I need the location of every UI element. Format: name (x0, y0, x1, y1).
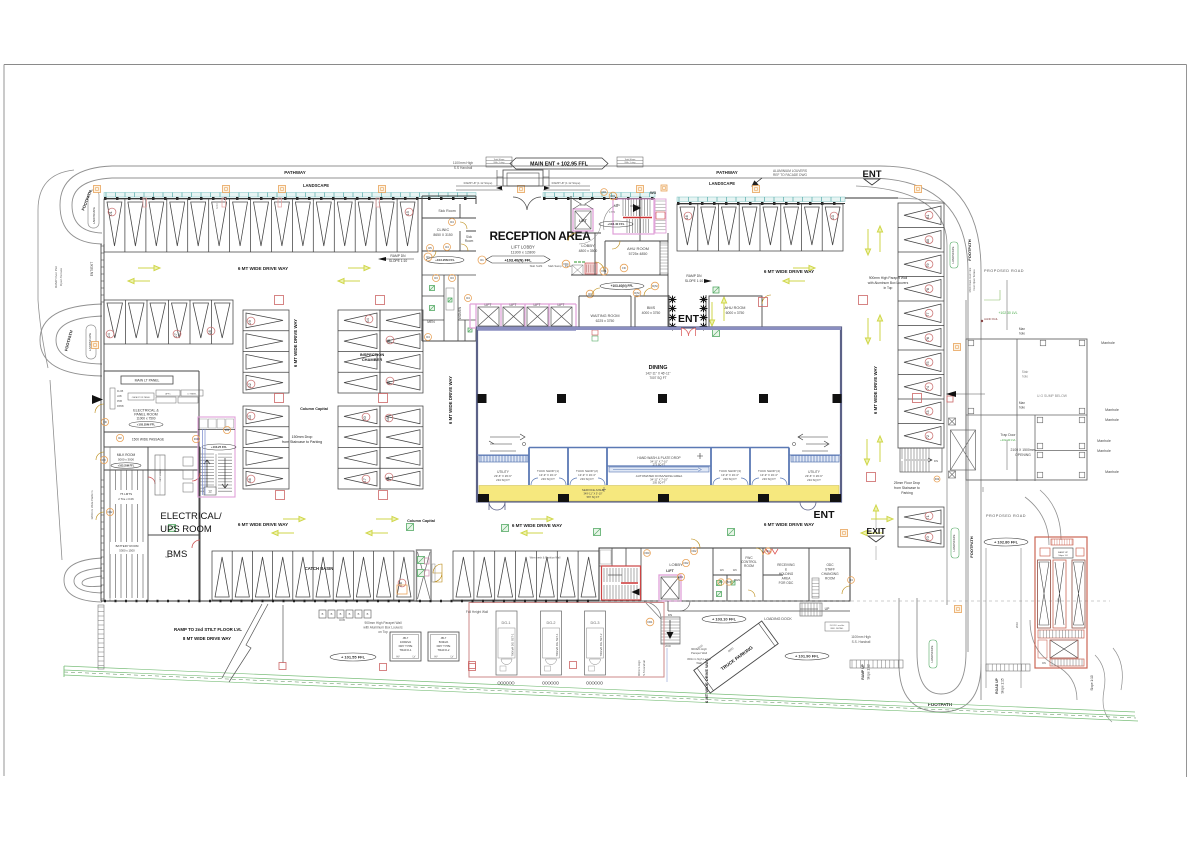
svg-text:6 MT WIDE DRIVE WAY: 6 MT WIDE DRIVE WAY (448, 376, 453, 424)
svg-text:APFC: APFC (165, 393, 171, 396)
svg-text:349'-11" X 5'-10": 349'-11" X 5'-10" (583, 492, 602, 496)
svg-text:2 Tire x 0.06: 2 Tire x 0.06 (118, 497, 134, 501)
svg-text:78: 78 (925, 288, 930, 292)
svg-text:With 1 step: With 1 step (494, 161, 506, 164)
svg-text:790kVA DG SET-1: 790kVA DG SET-1 (511, 633, 515, 656)
svg-text:RAMP DN: RAMP DN (686, 274, 702, 278)
svg-text:RAMP UP: RAMP UP (861, 663, 865, 679)
svg-text:FD: FD (622, 266, 626, 270)
svg-text:12: 12 (208, 490, 212, 494)
svg-text:Manhole: Manhole (1105, 408, 1119, 412)
svg-text:27: 27 (173, 333, 178, 337)
svg-text:900mm High Parapet Wall: 900mm High Parapet Wall (364, 621, 401, 625)
svg-text:HOLDING: HOLDING (779, 572, 794, 576)
svg-text:UP: UP (825, 607, 830, 611)
svg-text:Man: Man (1019, 327, 1025, 331)
svg-text:6000 x 3750: 6000 x 3750 (726, 311, 745, 315)
svg-text:142'-11" X 46'-11": 142'-11" X 46'-11" (646, 372, 671, 376)
svg-text:4000 x 3750: 4000 x 3750 (642, 311, 661, 315)
svg-text:46: 46 (398, 582, 403, 586)
svg-text:6 MT WIDE DRIVE WAY: 6 MT WIDE DRIVE WAY (238, 522, 288, 527)
svg-text:DG-3: DG-3 (590, 621, 599, 625)
svg-text:LIFT LOBBY: LIFT LOBBY (511, 245, 535, 250)
svg-text:ENT: ENT (863, 169, 882, 180)
svg-text:23: 23 (830, 215, 835, 219)
svg-text:D4: D4 (849, 578, 853, 582)
svg-text:FLOB: FLOB (117, 390, 124, 393)
svg-text:16: 16 (684, 215, 689, 219)
svg-text:Column Capital: Column Capital (300, 407, 328, 411)
svg-text:Open Terrace: Open Terrace (59, 268, 63, 286)
svg-text:LANDSCAPE: LANDSCAPE (303, 183, 329, 188)
svg-text:F02: F02 (935, 477, 940, 481)
svg-text:79: 79 (925, 263, 930, 267)
svg-text:ROAD UP: ROAD UP (995, 677, 999, 693)
svg-text:Manhole: Manhole (1105, 470, 1119, 474)
svg-text:FD1: FD1 (611, 194, 616, 198)
svg-text:LANDSCAPE: LANDSCAPE (951, 246, 955, 263)
svg-text:FD1: FD1 (602, 269, 607, 273)
svg-text:+103.25 FFL: +103.25 FFL (211, 445, 227, 449)
svg-text:5725x 4850: 5725x 4850 (629, 252, 648, 256)
svg-text:from Staircase to: from Staircase to (894, 486, 920, 490)
svg-text:LT PANEL: LT PANEL (187, 393, 197, 396)
svg-text:6 MT WIDE DRIVE WAY: 6 MT WIDE DRIVE WAY (512, 523, 562, 528)
svg-text:F01: F01 (225, 428, 230, 432)
svg-text:+ 103.10 FFL: + 103.10 FFL (712, 616, 737, 621)
svg-text:ROOM: ROOM (744, 564, 754, 568)
svg-text:V3: V3 (719, 580, 723, 584)
svg-text:7007 SQ FT: 7007 SQ FT (649, 376, 666, 380)
svg-text:CHAMBER: CHAMBER (362, 357, 383, 362)
svg-text:AUTOMATED DOSA/WASH AREA: AUTOMATED DOSA/WASH AREA (636, 474, 682, 478)
svg-text:CHANGING: CHANGING (821, 572, 839, 576)
svg-text:1773: 1773 (609, 210, 615, 214)
svg-text:B: B (340, 612, 342, 616)
svg-text:RAMP UP: RAMP UP (1058, 551, 1068, 554)
svg-text:Total Slope: Total Slope (625, 158, 637, 161)
svg-text:900mm High: 900mm High (637, 660, 641, 676)
svg-text:6 MT WIDE DRIVE WAY: 6 MT WIDE DRIVE WAY (238, 266, 288, 271)
svg-text:790kVA DG SET-1: 790kVA DG SET-1 (555, 633, 559, 656)
svg-text:UPS ROOM: UPS ROOM (160, 524, 212, 535)
svg-text:Sol: Sol (165, 555, 169, 559)
svg-text:W3: W3 (650, 190, 657, 195)
svg-text:Sick Room: Sick Room (438, 209, 455, 213)
svg-text:Wire mesh & Partition Wall: Wire mesh & Partition Wall (530, 556, 561, 560)
svg-text:Parapet Wall: Parapet Wall (691, 651, 707, 655)
svg-text:1100mm High: 1100mm High (453, 161, 473, 165)
svg-text:in Top: in Top (884, 286, 893, 290)
svg-text:D1: D1 (480, 258, 484, 262)
svg-text:FD: FD (103, 420, 107, 424)
svg-text:DOB: DOB (339, 618, 345, 622)
svg-text:FD3: FD3 (645, 551, 650, 555)
svg-text:U.G SUMP BELOW: U.G SUMP BELOW (1037, 394, 1068, 398)
svg-text:+103.40 FFL: +103.40 FFL (607, 222, 624, 226)
svg-text:B: B (331, 612, 333, 616)
svg-text:SERVICE AISLE: SERVICE AISLE (582, 488, 604, 492)
svg-text:ENT: ENT (678, 313, 700, 325)
svg-text:LANDSCAPE: LANDSCAPE (930, 645, 934, 662)
svg-text:FD1: FD1 (602, 190, 607, 194)
svg-text:EXIT: EXIT (867, 526, 887, 536)
svg-text:BATTERY ROOM: BATTERY ROOM (116, 544, 139, 548)
svg-text:OA: OA (766, 549, 770, 553)
svg-text:Floor Open Terrace: Floor Open Terrace (973, 269, 976, 291)
svg-text:205 SQ FT: 205 SQ FT (653, 481, 666, 485)
svg-text:73: 73 (925, 410, 930, 414)
svg-text:29: 29 (247, 320, 252, 324)
svg-text:Parking: Parking (901, 491, 913, 495)
svg-text:LIFT: LIFT (558, 303, 565, 307)
svg-text:233 SQ FT: 233 SQ FT (541, 477, 555, 481)
svg-text:32: 32 (247, 383, 252, 387)
svg-text:FOOTPATH: FOOTPATH (928, 702, 952, 707)
svg-text:LDB: LDB (117, 395, 122, 398)
svg-text:DG-1: DG-1 (501, 621, 510, 625)
svg-text:2100 X 1500mm: 2100 X 1500mm (1011, 448, 1036, 452)
svg-text:61: 61 (385, 476, 390, 480)
svg-text:Wall: Wall (696, 661, 702, 665)
svg-text:FD: FD (102, 458, 106, 462)
svg-text:DN: DN (1042, 662, 1046, 665)
svg-text:+ 101.90 FFL: + 101.90 FFL (795, 653, 820, 658)
svg-text:Slab Soffit: Slab Soffit (530, 264, 543, 268)
svg-text:ELECTRICAL/: ELECTRICAL/ (160, 511, 222, 522)
svg-text:FD4: FD4 (564, 262, 569, 266)
svg-text:RPDB: RPDB (117, 405, 124, 408)
svg-text:LIFT: LIFT (485, 303, 492, 307)
svg-text:AREA: AREA (782, 577, 792, 581)
svg-text:RAMP UP (1:12 Slope): RAMP UP (1:12 Slope) (552, 181, 581, 185)
svg-text:234 SQ FT: 234 SQ FT (807, 478, 821, 482)
svg-text:57: 57 (386, 380, 391, 384)
svg-text:D4: D4 (450, 220, 454, 224)
svg-text:233 SQ FT: 233 SQ FT (762, 477, 776, 481)
svg-text:LIFT: LIFT (579, 219, 587, 223)
svg-text:RECEIVING: RECEIVING (777, 563, 795, 567)
svg-text:6 MT WIDE DRIVE WAY: 6 MT WIDE DRIVE WAY (293, 319, 298, 367)
svg-text:+103.25M FFL: +103.25M FFL (435, 258, 455, 262)
svg-text:WAITING ROOM: WAITING ROOM (591, 314, 620, 318)
svg-text:HAND RAIL: HAND RAIL (984, 317, 998, 321)
svg-text:81: 81 (925, 214, 930, 218)
svg-text:V3: V3 (727, 580, 731, 584)
svg-text:FOOTPATH: FOOTPATH (967, 239, 972, 261)
svg-text:75: 75 (925, 361, 930, 365)
svg-text:B: B (367, 612, 369, 616)
svg-text:with Aluminum Box Louvers: with Aluminum Box Louvers (363, 626, 403, 630)
svg-text:1100mm High: 1100mm High (851, 635, 871, 639)
svg-text:LIFT: LIFT (666, 569, 674, 573)
svg-text:273 SQ FT: 273 SQ FT (653, 463, 666, 467)
svg-text:UP: UP (1057, 598, 1061, 602)
svg-text:FD1: FD1 (648, 620, 653, 624)
svg-text:REF. DETAIL: REF. DETAIL (831, 627, 845, 630)
svg-text:S.S. Handrail: S.S. Handrail (852, 640, 871, 644)
svg-text:D1: D1 (426, 255, 430, 259)
svg-text:DOCK Leveller: DOCK Leveller (830, 624, 845, 627)
svg-text:+103.40(N) FFL: +103.40(N) FFL (611, 284, 634, 288)
svg-text:FD1: FD1 (679, 575, 684, 579)
svg-text:55: 55 (386, 339, 391, 343)
svg-text:+102.30 LVL: +102.30 LVL (998, 311, 1017, 315)
svg-text:8 MT WIDE DRIVE WAY: 8 MT WIDE DRIVE WAY (183, 636, 231, 641)
svg-text:RAMP DN: RAMP DN (390, 254, 406, 258)
svg-text:2010: 2010 (1015, 621, 1019, 628)
svg-text:LANDSCAPE: LANDSCAPE (709, 181, 735, 186)
svg-text:Man: Man (1019, 401, 1025, 405)
svg-text:233 SQ FT: 233 SQ FT (723, 477, 737, 481)
svg-text:SLOPE 1:10: SLOPE 1:10 (685, 279, 703, 283)
svg-text:+103.25M FFL: +103.25M FFL (118, 464, 135, 467)
svg-text:15: 15 (405, 211, 410, 215)
svg-text:ENT/EXIT: ENT/EXIT (90, 262, 94, 276)
svg-text:4800 x 3500: 4800 x 3500 (579, 249, 598, 253)
svg-text:hole: hole (1019, 406, 1025, 410)
svg-text:HV: HV (434, 656, 438, 659)
svg-text:Slope 1:8: Slope 1:8 (1058, 555, 1068, 557)
svg-text:33: 33 (247, 415, 252, 419)
svg-text:1200mm Wide Platform: 1200mm Wide Platform (90, 490, 94, 520)
svg-text:FD2: FD2 (684, 561, 689, 565)
svg-text:6 MT WIDE DRIVE WAY: 6 MT WIDE DRIVE WAY (764, 269, 814, 274)
svg-text:+103.40(N) FFL: +103.40(N) FFL (504, 258, 532, 262)
svg-text:LANDSCAPE: LANDSCAPE (952, 534, 956, 551)
svg-text:Column Capital: Column Capital (407, 519, 435, 523)
svg-text:S.S Handrail: S.S Handrail (454, 166, 473, 170)
svg-text:OPENING: OPENING (1015, 453, 1031, 457)
svg-text:76: 76 (925, 337, 930, 341)
svg-text:FD2: FD2 (108, 510, 113, 514)
svg-text:+ 102.80 FFL: + 102.80 FFL (994, 539, 1019, 544)
svg-text:5000 x 3000: 5000 x 3000 (118, 458, 134, 462)
svg-text:from Staircase to Parking: from Staircase to Parking (282, 440, 322, 444)
svg-text:+102.30 LVL: +102.30 LVL (1000, 438, 1016, 442)
svg-text:Slope 1:12: Slope 1:12 (867, 664, 871, 679)
svg-text:47: 47 (362, 478, 367, 482)
svg-text:72: 72 (925, 435, 930, 439)
svg-text:STAFF: STAFF (825, 568, 835, 572)
svg-text:LIFT LOBBY: LIFT LOBBY (160, 468, 162, 481)
svg-text:RWD Drain From First: RWD Drain From First (969, 267, 972, 292)
svg-text:LIFT: LIFT (510, 303, 517, 307)
svg-text:5300 x 1500: 5300 x 1500 (119, 549, 135, 553)
svg-text:150mm Drop: 150mm Drop (292, 435, 313, 439)
svg-text:PATHWAY: PATHWAY (284, 170, 305, 175)
svg-text:D(N): D(N) (652, 284, 658, 288)
svg-text:25mm Floor Drop: 25mm Floor Drop (894, 481, 920, 485)
svg-text:PATHWAY: PATHWAY (716, 170, 737, 175)
svg-text:TRAFO-1: TRAFO-1 (400, 648, 412, 652)
svg-text:2000: 2000 (580, 203, 586, 207)
svg-text:LIFT: LIFT (534, 303, 541, 307)
svg-text:B: B (349, 612, 351, 616)
svg-text:UP: UP (614, 203, 620, 208)
svg-text:F04: F04 (194, 437, 199, 441)
svg-text:+103.25M FFL: +103.25M FFL (137, 422, 156, 426)
svg-text:71: 71 (925, 515, 930, 519)
svg-text:Manhole: Manhole (1097, 449, 1111, 453)
svg-text:hole: hole (1019, 332, 1025, 336)
svg-text:CLINIC: CLINIC (437, 228, 450, 232)
svg-text:PROPOSED ROAD: PROPOSED ROAD (986, 514, 1026, 518)
svg-text:With 1 step: With 1 step (625, 161, 637, 164)
svg-text:hole: hole (1022, 375, 1028, 379)
svg-text:233 SQ FT: 233 SQ FT (580, 477, 594, 481)
svg-text:LOBBY: LOBBY (669, 562, 683, 567)
svg-text:HAND WASH & PLATE DROP: HAND WASH & PLATE DROP (637, 456, 680, 460)
svg-text:MILK ROOM: MILK ROOM (117, 453, 136, 457)
svg-text:SLOPE 1:10: SLOPE 1:10 (389, 259, 407, 263)
svg-text:D(N): D(N) (634, 291, 640, 295)
svg-text:D4: D4 (445, 245, 449, 249)
svg-text:DN: DN (934, 459, 938, 463)
svg-text:Slope 1:15: Slope 1:15 (1001, 678, 1005, 693)
svg-text:CAPACITOR PANEL: CAPACITOR PANEL (132, 396, 151, 399)
svg-text:Slab Samp t. Panel: Slab Samp t. Panel (548, 264, 572, 268)
svg-text:+ 101.55 FFL: + 101.55 FFL (341, 654, 366, 659)
svg-text:D2: D2 (118, 436, 122, 440)
svg-text:WC: WC (720, 568, 724, 572)
svg-text:FD2: FD2 (692, 549, 697, 553)
svg-text:DN: DN (668, 613, 672, 617)
svg-text:ENT: ENT (814, 509, 836, 521)
svg-text:TRAFO-2: TRAFO-2 (438, 648, 450, 652)
svg-text:2000: 2000 (665, 644, 671, 648)
svg-text:ROOM: ROOM (825, 577, 835, 581)
svg-text:HV: HV (396, 656, 400, 659)
svg-text:CATCH BASIN: CATCH BASIN (305, 566, 334, 571)
svg-text:01: 01 (108, 211, 113, 215)
svg-text:8650 X 3150: 8650 X 3150 (433, 233, 452, 237)
svg-text:D4: D4 (466, 296, 470, 300)
svg-text:AHU ROOM: AHU ROOM (627, 246, 649, 251)
svg-text:REF TO FACADE DWG: REF TO FACADE DWG (773, 173, 807, 177)
svg-text:LV: LV (451, 656, 454, 659)
svg-text:MAIN LT PANEL: MAIN LT PANEL (135, 379, 160, 383)
svg-text:77: 77 (925, 312, 930, 316)
svg-text:WOMEN: WOMEN (458, 306, 462, 319)
svg-text:D3: D3 (434, 276, 438, 280)
svg-text:AHU ROOM: AHU ROOM (725, 306, 746, 310)
svg-text:Slope 1:10: Slope 1:10 (1090, 675, 1094, 690)
svg-text:1500 WIDE PASSAGE: 1500 WIDE PASSAGE (132, 438, 164, 442)
svg-text:Manhole: Manhole (1101, 341, 1115, 345)
svg-text:D4: D4 (426, 335, 430, 339)
svg-text:LV: LV (413, 656, 416, 659)
svg-text:Room: Room (465, 239, 474, 243)
svg-text:on Top: on Top (378, 630, 388, 634)
svg-text:11000 x 7500: 11000 x 7500 (136, 417, 155, 421)
svg-text:LANDSCAPE: LANDSCAPE (92, 207, 96, 224)
svg-text:B: B (358, 612, 360, 616)
svg-text:58: 58 (385, 417, 390, 421)
svg-text:with Aluminum Box Louvers: with Aluminum Box Louvers (868, 281, 909, 285)
svg-text:Trap Door: Trap Door (1000, 433, 1016, 437)
svg-text:B: B (322, 612, 324, 616)
svg-text:PROPOSED ROAD: PROPOSED ROAD (984, 269, 1024, 273)
svg-text:BMS: BMS (167, 549, 188, 560)
svg-text:RAMP TO 2nd STILT FLOOR LVL: RAMP TO 2nd STILT FLOOR LVL (174, 627, 242, 632)
svg-text:MAIN ENT + 102.95 FFL: MAIN ENT + 102.95 FFL (530, 162, 589, 168)
svg-text:RAMP UP (1:12 Slope): RAMP UP (1:12 Slope) (464, 181, 493, 185)
svg-text:S.S Handrail: S.S Handrail (642, 660, 646, 676)
svg-text:234 SQ FT: 234 SQ FT (496, 478, 510, 482)
svg-text:PDB: PDB (117, 400, 122, 403)
svg-text:36: 36 (247, 478, 252, 482)
svg-text:DINING: DINING (649, 365, 668, 371)
svg-text:RAMP Over Plot: RAMP Over Plot (54, 266, 58, 288)
svg-text:900mm High Parapet Wall: 900mm High Parapet Wall (869, 276, 908, 280)
svg-text:FOOTPATH: FOOTPATH (969, 536, 974, 558)
svg-text:MEN: MEN (427, 320, 435, 324)
svg-text:Stair: Stair (1022, 370, 1029, 374)
svg-text:Manhole: Manhole (1097, 439, 1111, 443)
svg-text:75 LMTS: 75 LMTS (120, 492, 132, 496)
svg-text:Manhole: Manhole (1105, 418, 1119, 422)
svg-text:FOR ODC: FOR ODC (779, 581, 794, 585)
svg-text:11300 x 12800: 11300 x 12800 (511, 251, 536, 255)
svg-text:LOADING DOCK: LOADING DOCK (764, 617, 792, 621)
svg-text:6225 x 3750: 6225 x 3750 (596, 319, 615, 323)
svg-text:DG-2: DG-2 (546, 621, 555, 625)
svg-text:6 MT WIDE DRIVE WAY: 6 MT WIDE DRIVE WAY (764, 522, 814, 527)
svg-text:MEN: MEN (734, 578, 740, 582)
svg-text:6 MT WIDE DRIVE WAY: 6 MT WIDE DRIVE WAY (873, 366, 878, 414)
svg-text:587 SQ FT: 587 SQ FT (587, 495, 600, 499)
svg-text:32XX: 32XX (216, 203, 219, 209)
svg-text:D5: D5 (428, 246, 432, 250)
svg-text:Full Height Wall: Full Height Wall (466, 610, 488, 614)
svg-text:D3: D3 (450, 276, 454, 280)
svg-text:ODC: ODC (826, 563, 834, 567)
svg-text:Total Slope: Total Slope (494, 158, 506, 161)
svg-text:WC: WC (733, 568, 737, 572)
svg-text:BMS: BMS (647, 306, 656, 310)
svg-text:790kVA DG SET-2: 790kVA DG SET-2 (599, 633, 603, 656)
svg-text:28: 28 (207, 330, 212, 334)
